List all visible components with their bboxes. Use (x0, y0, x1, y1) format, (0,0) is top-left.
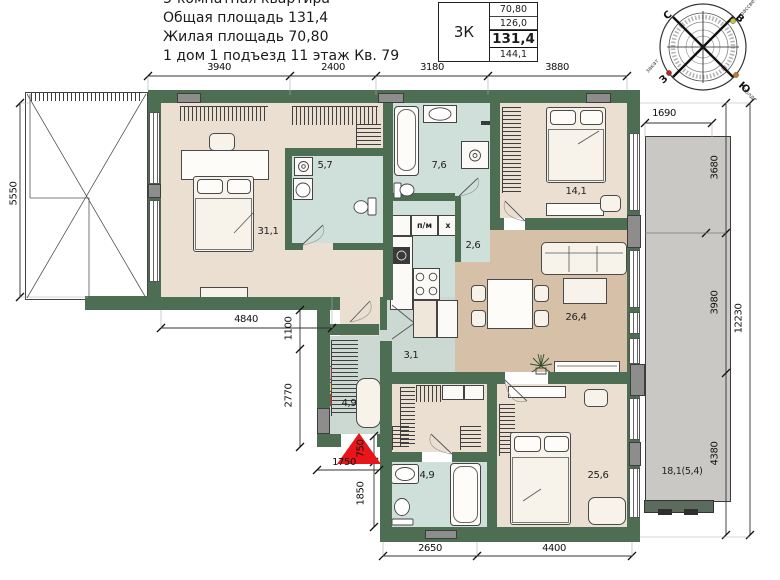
wall-bath57-bottom-a (285, 243, 303, 250)
lintel-block (627, 215, 641, 248)
compass-west-dot (666, 70, 671, 75)
wall-west-lower (380, 384, 392, 540)
dishwasher-label: п/м (411, 215, 438, 236)
dim-inner-1100: 1100 (284, 309, 295, 349)
pillow (514, 436, 541, 452)
compass-rose-icon: С В З Ю рассвет закат полдень (645, 0, 780, 100)
pillow (197, 179, 223, 194)
kitchen-counter-corner (413, 300, 437, 338)
terrace-hatch (31, 92, 143, 101)
lintel-block (177, 93, 201, 103)
wall-bath57-top (285, 148, 390, 156)
apartment-summary-table: 3К 70,80 126,0 131,4 144,1 (438, 2, 538, 62)
blanket-right (548, 129, 604, 181)
dim-right-3680: 3680 (710, 148, 721, 188)
floor-plan-canvas: 3-комнатная квартира Общая площадь 131,4… (0, 0, 780, 580)
wardrobe-bedroom-right (502, 107, 521, 193)
dining-chair (471, 285, 486, 302)
dining-chair (471, 310, 486, 327)
area-label-entry: 4,9 (334, 398, 364, 409)
compass-east-dot (730, 18, 735, 23)
area-label-corridor: 3,1 (396, 350, 426, 361)
wardrobe-master-a (292, 106, 378, 125)
dim-top-2: 2400 (303, 62, 363, 73)
dining-chair (534, 285, 549, 302)
apartment-type-label: 3К (439, 3, 490, 61)
wall-mid-upper (490, 103, 500, 218)
summary-row: 70,80 (490, 3, 537, 17)
pillow (580, 110, 603, 125)
dim-top-3: 3180 (402, 62, 462, 73)
shower-unit (461, 141, 489, 169)
pillow (544, 436, 569, 452)
wall-bedroom-bottom (148, 297, 340, 310)
dim-inner-1850: 1850 (356, 474, 367, 514)
blanket-bottom (512, 457, 569, 523)
wall-bath57-bottom-b (333, 243, 390, 250)
sofa (541, 242, 627, 275)
corridor-cabinet (464, 385, 484, 400)
dim-bottom-4400: 4400 (524, 543, 584, 554)
wall-bedroom-right-bottom (525, 218, 627, 230)
header-title: 3-комнатная квартира (163, 0, 399, 9)
wardrobe-corridor-b (416, 385, 441, 402)
wall-bedroom-right-stub (490, 218, 504, 230)
summary-row: 126,0 (490, 17, 537, 31)
area-label-master: 31,1 (248, 226, 288, 237)
area-label-living: 26,4 (556, 312, 596, 323)
window-right-3 (629, 312, 640, 334)
desk-bedroom-right (546, 203, 604, 216)
dim-right-4380: 4380 (710, 434, 721, 474)
area-label-balcony: 18,1(5,4) (648, 466, 716, 477)
lintel-block (148, 184, 161, 198)
bathtub-bottom-inner (453, 466, 478, 523)
header-total-area: Общая площадь 131,4 (163, 9, 399, 28)
wardrobe-bath-right (460, 426, 481, 450)
dim-top-1: 3940 (189, 62, 249, 73)
chair-bedroom-right (600, 195, 621, 212)
coffee-table (563, 278, 607, 304)
chair-master (209, 133, 235, 151)
window-left-2 (149, 200, 160, 282)
curtain-master (180, 106, 268, 121)
dim-right-12230: 12230 (734, 294, 745, 344)
wall-mid-vertical (383, 103, 393, 300)
window-right-5 (629, 468, 640, 518)
area-label-bedroom-bottom: 25,6 (578, 470, 618, 481)
dim-left-5550: 5550 (9, 174, 20, 214)
summary-row-total: 131,4 (490, 30, 537, 48)
dim-bottom-2650: 2650 (400, 543, 460, 554)
terrace (25, 92, 148, 300)
corridor-cabinet (442, 385, 464, 400)
header-living-area: Жилая площадь 70,80 (163, 28, 399, 47)
dim-inner-4840: 4840 (216, 314, 276, 325)
compass-south-dot (733, 72, 738, 77)
area-label-bath-top: 5,7 (310, 160, 340, 171)
window-right-2 (629, 250, 640, 308)
sink-bath-top (293, 178, 313, 200)
plan-header: 3-комнатная квартира Общая площадь 131,4… (163, 0, 399, 66)
dining-chair (534, 310, 549, 327)
summary-row: 144,1 (490, 48, 537, 61)
desk-bedroom-bottom (508, 386, 566, 398)
wall-entry-bottom-a (317, 434, 341, 447)
window-right-4 (629, 398, 640, 440)
wall-bath49-top-a (380, 452, 422, 462)
dim-inner-750: 750 (356, 429, 367, 469)
area-label-bath-mid: 7,6 (424, 160, 454, 171)
dim-right-1690: 1690 (638, 108, 690, 119)
balcony-rail-notch (684, 509, 698, 515)
dining-table (487, 279, 533, 329)
lintel-block (629, 442, 641, 466)
stove (413, 268, 440, 300)
wall-bottom-zone-b (548, 372, 627, 384)
dim-inner-2770: 2770 (284, 376, 295, 416)
area-label-bath-bottom: 4,9 (412, 470, 442, 481)
pillow (550, 110, 576, 125)
wardrobe-bath-left (392, 426, 409, 450)
dim-right-3980: 3980 (710, 283, 721, 323)
wall-bottom-zone-a (387, 372, 505, 384)
wall-corridor-west-a (380, 297, 387, 330)
dim-top-4: 3880 (527, 62, 587, 73)
chair-bedroom-bottom (584, 389, 608, 407)
lintel-block (378, 93, 404, 103)
compass-north-label: С (662, 9, 675, 22)
lintel-block (586, 93, 611, 103)
bathtub-mid-inner (397, 109, 416, 171)
kitchen-counter-right (437, 300, 458, 338)
wall-bottom (380, 527, 640, 542)
window-right-1 (629, 133, 640, 211)
wall-entry-top (317, 324, 379, 335)
area-label-bedroom-right: 14,1 (556, 186, 596, 197)
wall-kitchen-partition (455, 196, 461, 262)
wall-bath76-bottom (393, 193, 455, 201)
sink-bath-mid (423, 105, 457, 123)
pillow (227, 179, 251, 194)
lintel-block (317, 408, 330, 434)
compass-sunset-label: закат (645, 58, 661, 75)
armchair (588, 497, 626, 525)
balcony-door (629, 338, 640, 364)
area-label-hall-small: 2,6 (458, 240, 488, 251)
lintel-block (425, 530, 457, 539)
wall-bath49-top-b (452, 452, 490, 462)
balcony-rail (644, 500, 714, 513)
compass-noon-label: полдень (741, 87, 763, 100)
window-left-1 (149, 112, 160, 184)
kitchen-sink (393, 247, 410, 264)
balcony-rail-notch (658, 509, 672, 515)
blanket-master (195, 198, 252, 250)
summary-values: 70,80 126,0 131,4 144,1 (490, 3, 537, 61)
lintel-block (630, 364, 645, 396)
compass-sunrise-label: рассвет (739, 0, 759, 17)
